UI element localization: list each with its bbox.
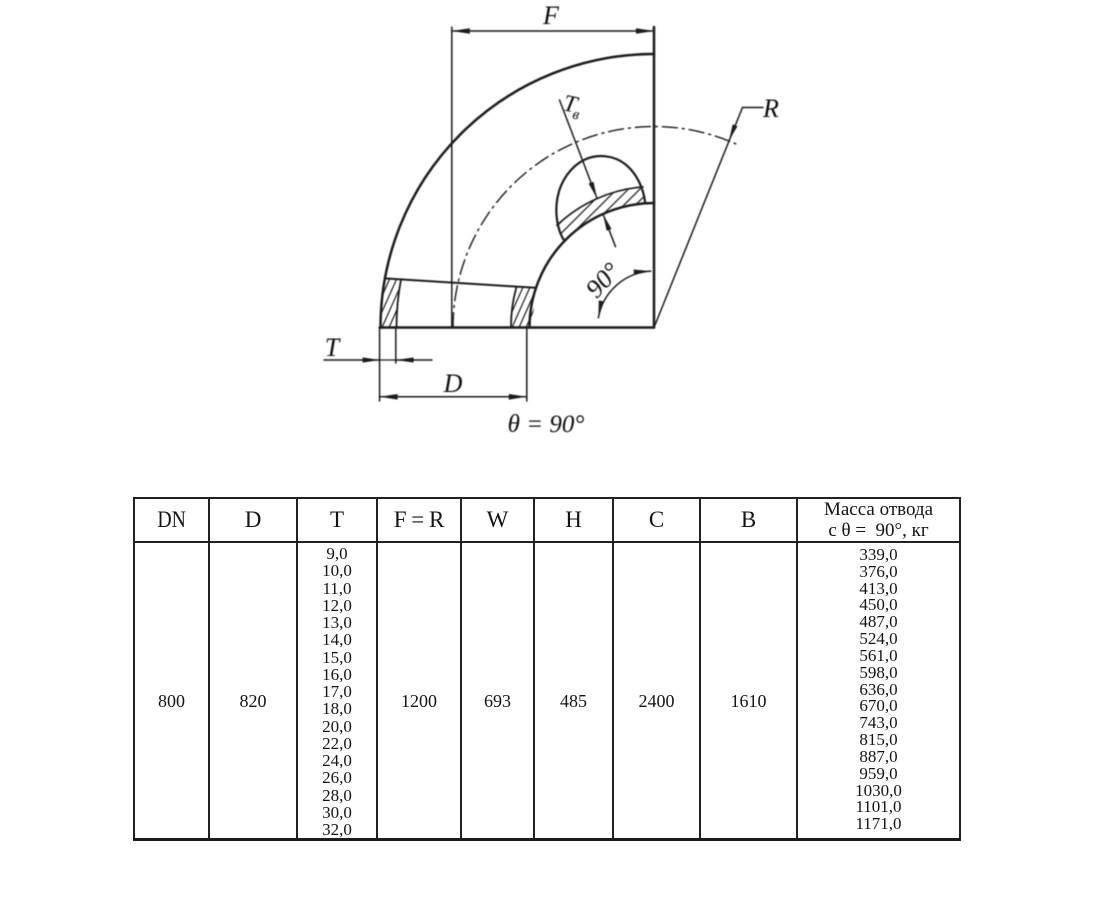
svg-text:F: F xyxy=(542,1,560,30)
svg-text:R: R xyxy=(762,94,779,123)
svg-text:90°: 90° xyxy=(580,257,626,303)
svg-text:θ = 90°: θ = 90° xyxy=(508,411,585,438)
svg-text:D: D xyxy=(443,369,463,398)
svg-text:T: T xyxy=(325,333,341,362)
svg-text:Tв: Tв xyxy=(560,90,584,123)
